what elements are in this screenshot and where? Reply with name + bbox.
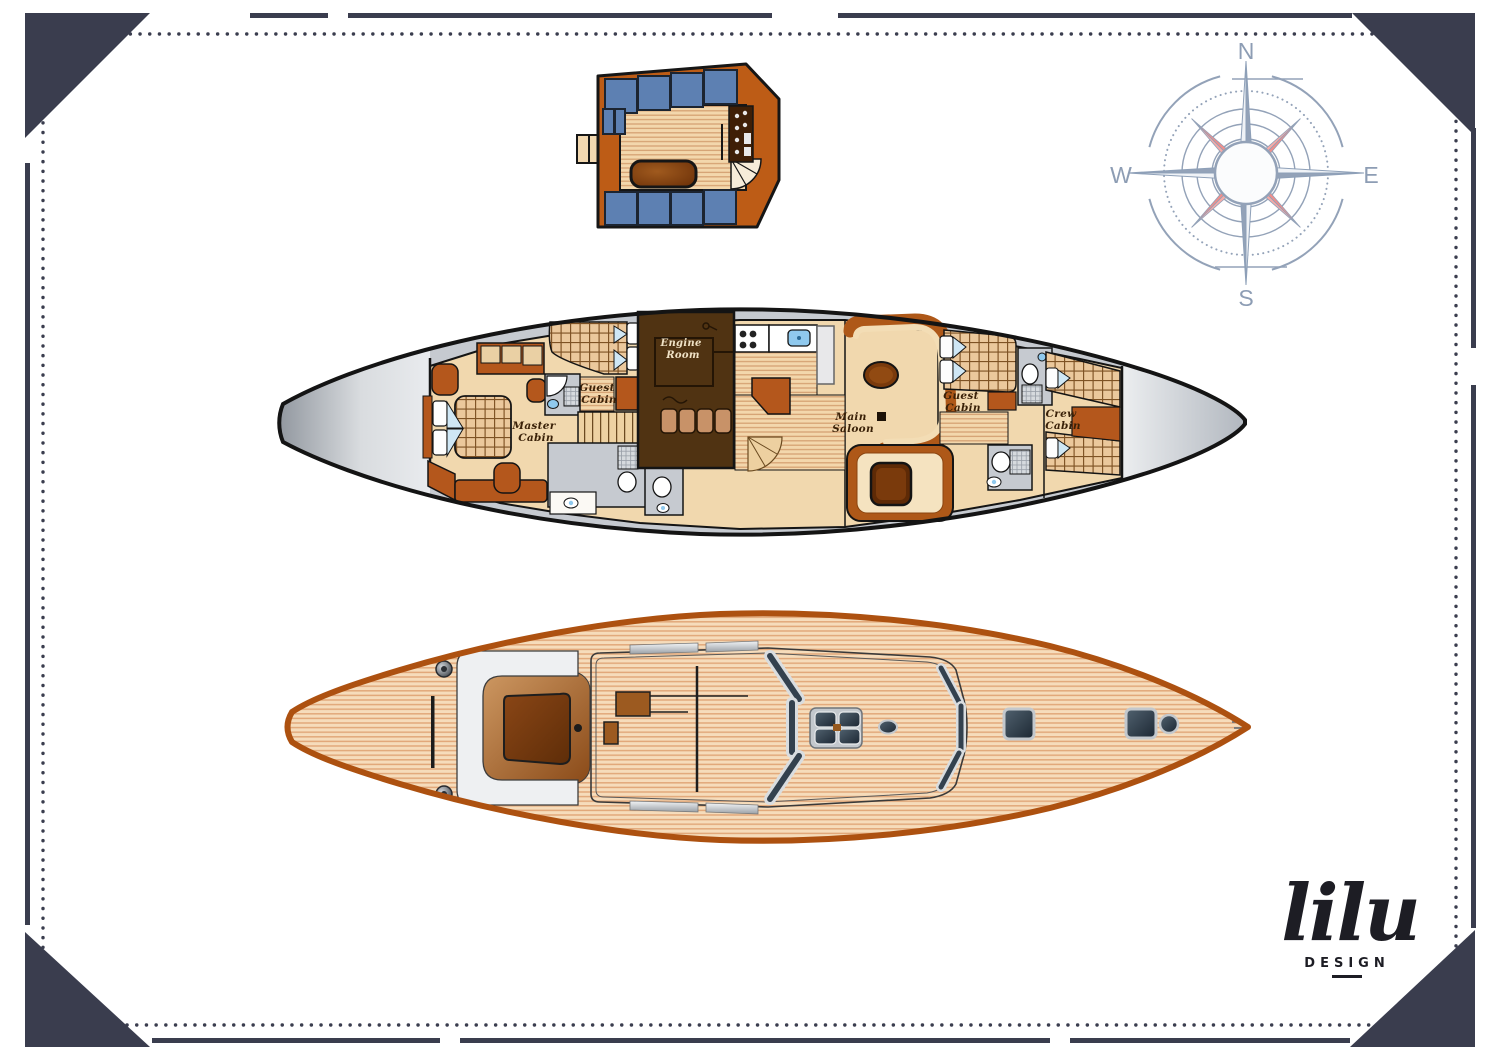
- sink-drain: [992, 480, 996, 484]
- yacht-blueprint-page: N E S W: [0, 0, 1500, 1060]
- fridge: [817, 326, 834, 384]
- frame-bar-top: [838, 13, 1352, 18]
- tile-floor: [1010, 450, 1030, 474]
- blueprint-canvas: N E S W: [0, 0, 1500, 1060]
- cockpit-footwell: [504, 694, 570, 764]
- chair: [494, 463, 520, 493]
- deckhouse-detail-plan: [577, 64, 779, 227]
- wardrobe: [616, 377, 640, 410]
- headboard: [423, 396, 432, 458]
- seat: [432, 364, 458, 395]
- master-bed: [455, 396, 511, 458]
- rudder-post: [574, 724, 582, 732]
- sink-drain: [569, 501, 573, 505]
- pillow: [1046, 438, 1058, 458]
- frame-bar-top: [250, 13, 328, 18]
- compass-label-west: W: [1110, 162, 1132, 188]
- corner-triangle-bottom-left: [25, 932, 150, 1047]
- sink-drain: [661, 506, 665, 510]
- compass-hub: [1215, 142, 1277, 204]
- frame-bar-left: [25, 163, 30, 925]
- toilet: [618, 472, 636, 492]
- utility-right: [645, 462, 683, 515]
- pillow: [433, 401, 447, 426]
- side-table: [527, 379, 546, 402]
- guest-cabin-fwd-label: Guest Cabin: [943, 390, 983, 414]
- engine-room-floor: [638, 312, 734, 468]
- coffee-table-top: [876, 468, 906, 500]
- compass-label-east: E: [1363, 162, 1378, 188]
- tile-floor: [1022, 385, 1042, 403]
- frame-bar-right: [1471, 385, 1476, 928]
- sink-drain: [797, 336, 801, 340]
- toilet: [1022, 364, 1038, 384]
- pillow: [940, 360, 953, 383]
- master-cabin-label: Master Cabin: [511, 420, 559, 444]
- pillow: [1046, 368, 1058, 388]
- sink: [548, 400, 559, 409]
- sink: [1038, 353, 1046, 361]
- cockpit-table: [631, 161, 696, 187]
- corner-triangle-top-left: [25, 13, 150, 138]
- tile-floor: [564, 387, 579, 406]
- pillow: [940, 336, 953, 358]
- engine-room: Engine Room: [638, 312, 734, 468]
- boarding-step: [577, 135, 589, 163]
- cabinet-door: [523, 346, 542, 365]
- winch-center: [441, 666, 447, 672]
- frame-bar-right: [1471, 128, 1476, 348]
- traveler-track: [431, 696, 435, 768]
- guest-cabin-aft-label: Guest Cabin: [579, 382, 619, 406]
- toilet: [992, 452, 1010, 472]
- deck-plan: [288, 613, 1253, 841]
- head-fwd-bottom: [987, 445, 1032, 490]
- floor: [940, 412, 1008, 444]
- compass-label-north: N: [1238, 38, 1255, 64]
- cabinet-door: [502, 346, 521, 363]
- locker: [988, 392, 1016, 410]
- logo-wordmark: lilu: [1281, 868, 1419, 959]
- dorade-vent: [879, 721, 897, 734]
- skylight-center: [833, 724, 841, 731]
- pillow: [433, 430, 447, 455]
- deck-hatch: [1004, 709, 1034, 739]
- bathroom-mid: [545, 374, 580, 415]
- frame-bar-bottom: [460, 1038, 1050, 1043]
- deck-port: [1160, 715, 1178, 733]
- crew-cabin-label: Crew Cabin: [1045, 408, 1081, 432]
- stern-deck: [276, 300, 430, 550]
- logo-underline: [1332, 975, 1362, 978]
- frame-bar-bottom: [1070, 1038, 1350, 1043]
- crew-cabin: Crew Cabin: [1045, 352, 1120, 475]
- main-saloon-label: Main Saloon: [832, 411, 874, 435]
- compass-rose-icon: N E S W: [1110, 38, 1379, 311]
- galley: [735, 325, 845, 471]
- interior-plan: Master Cabin Guest Cabin: [276, 300, 1252, 550]
- engine-room-label: Engine Room: [660, 338, 706, 361]
- tile-floor: [618, 446, 638, 469]
- toilet: [653, 477, 671, 497]
- corner-triangle-top-right: [1352, 13, 1475, 136]
- frame-bar-bottom: [152, 1038, 440, 1043]
- cabinet-door: [481, 346, 500, 363]
- logo: lilu DESIGN: [1281, 868, 1419, 978]
- logo-subtitle: DESIGN: [1304, 956, 1389, 971]
- saloon-table-top: [869, 367, 893, 384]
- frame-bar-top: [348, 13, 772, 18]
- hatch-slide: [604, 722, 618, 744]
- compass-label-south: S: [1238, 285, 1253, 311]
- pedestal: [877, 412, 886, 421]
- guest-cabin-fwd: Guest Cabin: [940, 330, 1016, 444]
- companionway-hatch: [616, 692, 650, 716]
- deck-hatch: [1126, 709, 1156, 738]
